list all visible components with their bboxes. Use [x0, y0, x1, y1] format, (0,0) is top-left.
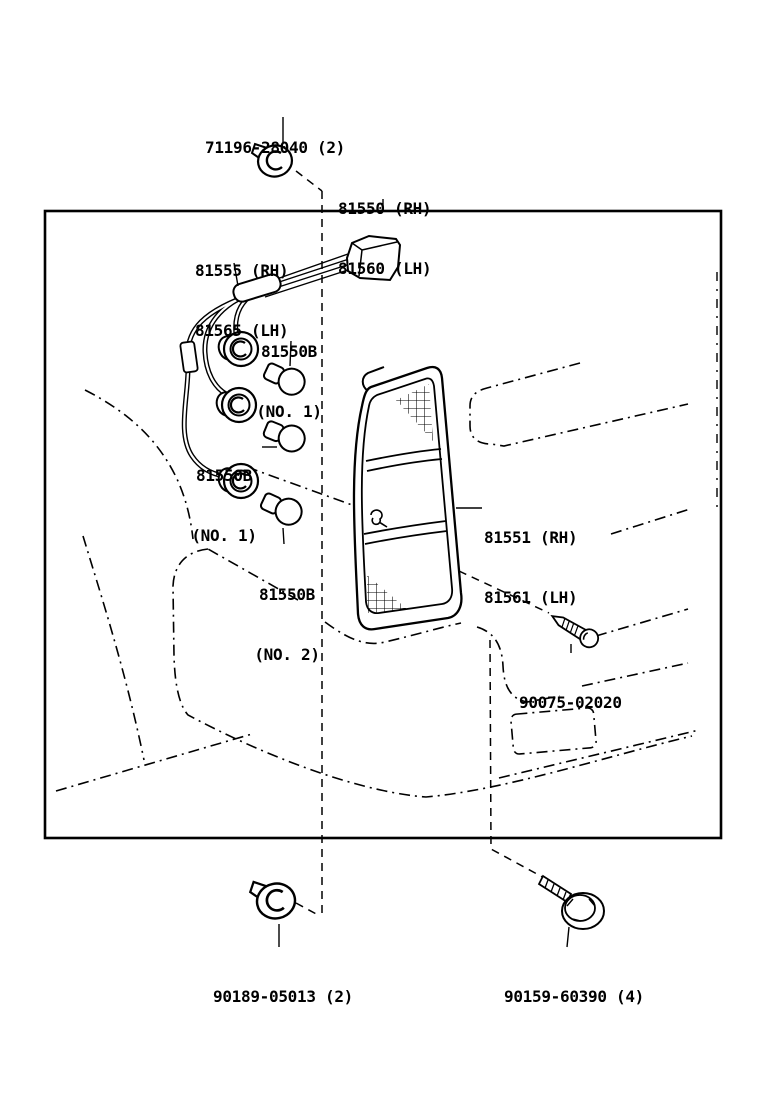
drawing-code: 810010-A — [650, 1078, 729, 1112]
part-number-line: 90075-02020 — [519, 693, 622, 713]
part-label-90159-60390: 90159-60390 (4) — [504, 947, 644, 1027]
part-label-81551-81561: 81551 (RH) 81561 (LH) — [484, 488, 577, 628]
bulb-3 — [258, 488, 306, 529]
part-number-line: 81555 (RH) — [195, 261, 288, 281]
part-label-90189-05013: 90189-05013 (2) — [213, 947, 353, 1027]
part-number-line: (NO. 1) — [184, 526, 264, 546]
part-number-line: 81560 (LH) — [338, 259, 431, 279]
part-number-line: 90189-05013 (2) — [213, 987, 353, 1007]
part-label-81550b-no1-upper: 81550B (NO. 1) — [249, 302, 329, 442]
parts-diagram-page: 71196-28040 (2) 81550 (RH) 81560 (LH) 81… — [0, 0, 760, 1112]
clip-icon-bottom — [250, 880, 298, 922]
part-label-81550b-no2: 81550B (NO. 2) — [247, 545, 327, 685]
part-number-line: 81561 (LH) — [484, 588, 577, 608]
part-number-line: 81551 (RH) — [484, 528, 577, 548]
part-number-line: 81550B — [247, 585, 327, 605]
tail-lamp-lens — [354, 367, 461, 629]
bolt-icon — [539, 876, 604, 929]
part-number-line: 71196-28040 (2) — [205, 138, 345, 158]
part-number-line: 90159-60390 (4) — [504, 987, 644, 1007]
part-number-line: 81550B — [249, 342, 329, 362]
part-number-line: (NO. 1) — [249, 402, 329, 422]
part-number-line: 81550 (RH) — [338, 199, 431, 219]
part-label-71196-28040: 71196-28040 (2) — [205, 98, 345, 178]
part-number-line: (NO. 2) — [247, 645, 327, 665]
part-label-81550-81560: 81550 (RH) 81560 (LH) — [338, 159, 431, 299]
part-number-line: 81550B — [184, 466, 264, 486]
part-label-90075-02020: 90075-02020 — [519, 653, 622, 733]
